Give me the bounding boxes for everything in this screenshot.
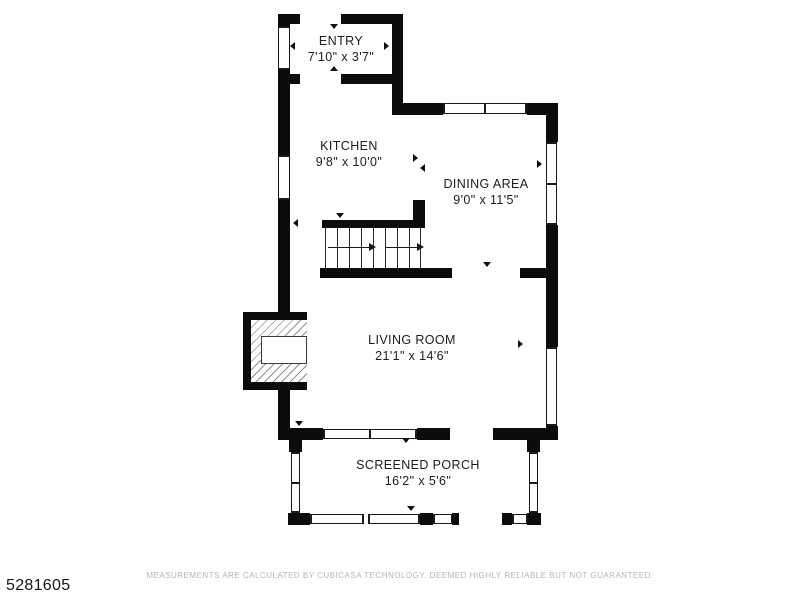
window [443,103,527,114]
porch-screen [433,514,453,524]
fireplace-firebox [261,336,307,364]
door-arrow-icon [330,66,338,71]
wall-stair-bottom [320,268,452,278]
porch-post [420,513,433,525]
wall-dining-living-stub [520,268,546,278]
porch-post [527,440,540,452]
door-arrow-icon [330,24,338,29]
room-label-dining: DINING AREA 9'0" x 11'5" [444,176,529,208]
room-dims: 9'0" x 11'5" [444,192,529,208]
fireplace-wall [243,312,251,390]
fireplace-wall [243,312,307,320]
room-label-entry: ENTRY 7'10" x 3'7" [308,33,374,65]
wall [546,225,558,347]
room-dims: 16'2" x 5'6" [356,473,480,489]
measure-arrow-icon [518,340,523,348]
window [278,26,290,70]
measure-arrow-icon [295,421,303,426]
porch-post [289,440,302,452]
wall [278,428,323,440]
room-dims: 9'8" x 10'0" [316,154,382,170]
wall [546,115,558,142]
porch-post [452,513,459,525]
stair-direction-arrow [328,247,374,248]
measure-arrow-icon [290,42,295,50]
measure-arrow-icon [336,213,344,218]
porch-post [502,513,512,525]
wall-stair-top [322,220,425,228]
room-label-living: LIVING ROOM 21'1" x 14'6" [368,332,456,364]
disclaimer-text: MEASUREMENTS ARE CALCULATED BY CUBICASA … [0,571,800,580]
wall [278,14,290,26]
measure-arrow-icon [293,219,298,227]
fireplace-wall [243,382,307,390]
wall [493,428,558,440]
measure-arrow-icon [483,262,491,267]
room-label-kitchen: KITCHEN 9'8" x 10'0" [316,138,382,170]
wall [392,14,403,115]
porch-post [527,513,541,525]
wall [417,428,450,440]
wall [527,103,558,115]
room-name: SCREENED PORCH [356,457,480,473]
window [546,142,557,225]
room-name: ENTRY [308,33,374,49]
stair-direction-arrow [386,247,422,248]
window [278,155,290,200]
porch-screen [529,452,538,513]
measure-arrow-icon [420,164,425,172]
room-label-porch: SCREENED PORCH 16'2" x 5'6" [356,457,480,489]
room-dims: 21'1" x 14'6" [368,348,456,364]
wall [392,103,443,115]
wall [278,74,300,84]
floor-plan-canvas: ENTRY 7'10" x 3'7" KITCHEN 9'8" x 10'0" … [0,0,800,600]
measure-arrow-icon [537,160,542,168]
window [546,347,557,426]
measure-arrow-icon [402,438,410,443]
porch-screen [291,452,300,513]
room-dims: 7'10" x 3'7" [308,49,374,65]
room-name: KITCHEN [316,138,382,154]
room-name: DINING AREA [444,176,529,192]
porch-screen [512,514,528,524]
measure-arrow-icon [407,506,415,511]
wall [278,200,290,312]
porch-screen [310,514,364,524]
wall [278,84,290,155]
porch-screen [368,514,420,524]
porch-post [288,513,310,525]
measure-arrow-icon [384,42,389,50]
room-name: LIVING ROOM [368,332,456,348]
measure-arrow-icon [413,154,418,162]
